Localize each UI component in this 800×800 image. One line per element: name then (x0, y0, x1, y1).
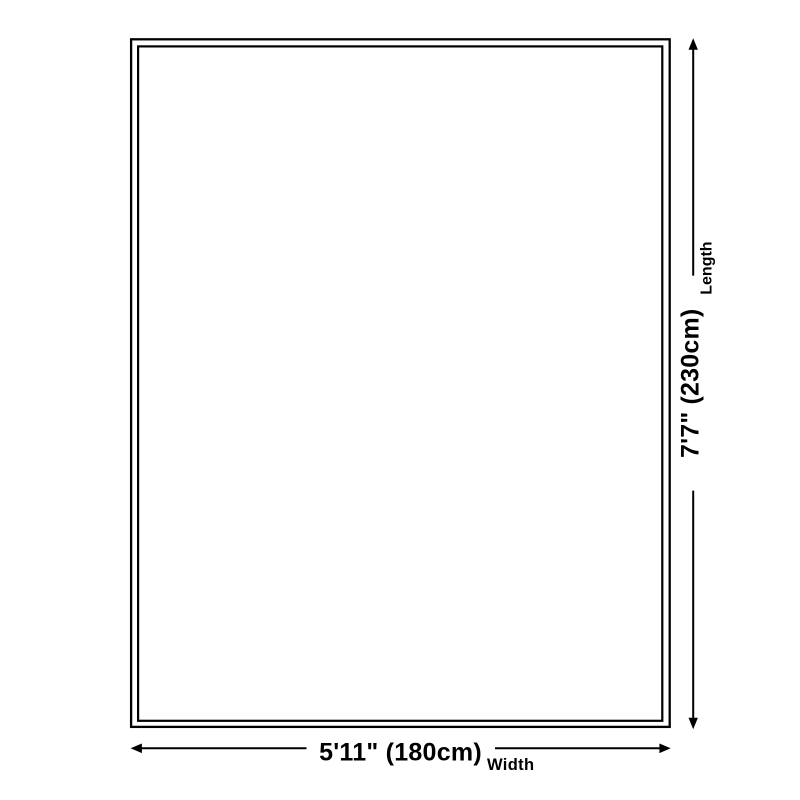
svg-text:Length: Length (698, 241, 715, 294)
svg-text:5'11" (180cm): 5'11" (180cm) (319, 739, 482, 767)
svg-text:Width: Width (487, 756, 534, 774)
svg-text:7'7" (230cm): 7'7" (230cm) (677, 309, 705, 458)
